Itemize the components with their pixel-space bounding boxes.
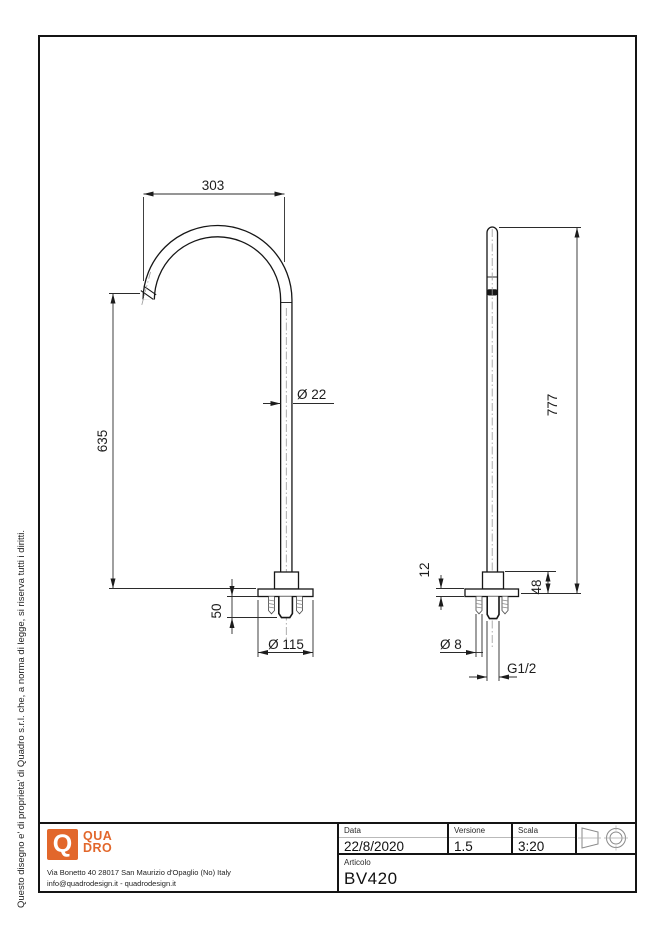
- side-view: 777 12 48 Ø 8 G1/2: [417, 227, 581, 681]
- title-block: Data 22/8/2020 Versione 1.5 Scala 3:20: [337, 822, 637, 893]
- spout-tube-fill: [149, 231, 287, 573]
- front-flange: [258, 589, 313, 597]
- title-cell-versione: Versione 1.5: [449, 824, 513, 853]
- dim-flange-thickness: 12: [417, 562, 432, 577]
- data-value: 22/8/2020: [339, 838, 447, 854]
- title-block-row2: Articolo BV420: [339, 855, 635, 889]
- drawing-sheet: Questo disegno e' di proprieta' di Quadr…: [0, 0, 665, 940]
- title-block-row1: Data 22/8/2020 Versione 1.5 Scala 3:20: [339, 824, 635, 855]
- technical-drawing: 303 635 Ø 22 50 Ø 115: [0, 0, 665, 940]
- dim-overall-height: 777: [545, 394, 560, 417]
- articolo-label: Articolo: [339, 855, 635, 868]
- side-collar: [483, 572, 504, 589]
- versione-label: Versione: [449, 824, 511, 838]
- company-contacts: info@quadrodesign.it - quadrodesign.it: [47, 879, 176, 888]
- company-box: Q QUA DRO Via Bonetto 40 28017 San Mauri…: [38, 822, 339, 893]
- front-dimension-lines: [109, 194, 334, 657]
- scala-label: Scala: [513, 824, 575, 838]
- side-dimension-lines: [436, 228, 581, 682]
- first-angle-projection-icon: [577, 824, 634, 852]
- dim-base-diameter: Ø 115: [268, 637, 304, 652]
- side-inlet-pipe: [487, 597, 499, 619]
- dim-under-counter-length: 50: [209, 603, 224, 618]
- dim-tube-diameter: Ø 22: [297, 387, 326, 402]
- dim-spout-height: 635: [95, 430, 110, 453]
- dim-spout-reach: 303: [202, 178, 225, 193]
- dim-base-height: 48: [529, 579, 544, 594]
- quadro-logo-icon: Q: [47, 829, 78, 860]
- front-view: 303 635 Ø 22 50 Ø 115: [95, 178, 334, 657]
- front-collar: [275, 572, 299, 589]
- dim-inlet-thread: G1/2: [507, 661, 536, 676]
- dim-stud-diameter: Ø 8: [440, 637, 462, 652]
- spout-tube-outline: [149, 231, 287, 573]
- company-address: Via Bonetto 40 28017 San Maurizio d'Opag…: [47, 868, 231, 877]
- logo-line-2: DRO: [83, 841, 112, 855]
- scala-value: 3:20: [513, 838, 575, 854]
- data-label: Data: [339, 824, 447, 838]
- versione-value: 1.5: [449, 838, 511, 854]
- title-cell-data: Data 22/8/2020: [339, 824, 449, 853]
- front-inlet-pipe: [279, 597, 293, 618]
- title-cell-projection: [577, 824, 635, 853]
- title-cell-scala: Scala 3:20: [513, 824, 577, 853]
- articolo-value: BV420: [339, 868, 635, 889]
- side-flange: [465, 589, 519, 597]
- quadro-logo-text: QUA DRO: [83, 830, 112, 854]
